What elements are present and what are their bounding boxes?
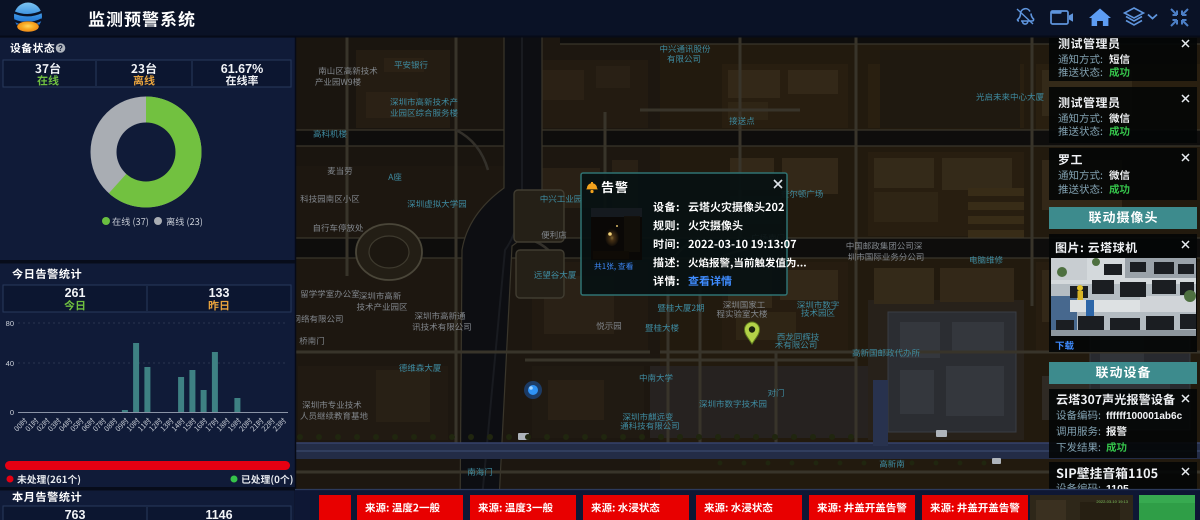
- svg-text:2022-03-10 19:13: 2022-03-10 19:13: [1096, 499, 1128, 504]
- svg-text:0: 0: [10, 408, 14, 417]
- svg-text:61.67%: 61.67%: [221, 62, 263, 76]
- svg-text:1146: 1146: [205, 508, 232, 520]
- svg-text:763: 763: [65, 508, 86, 520]
- svg-text:261: 261: [65, 286, 86, 300]
- svg-text:80: 80: [6, 319, 14, 328]
- svg-text:133: 133: [209, 286, 230, 300]
- svg-text:ffffff100001ab6c: ffffff100001ab6c: [1106, 411, 1183, 422]
- svg-text:40: 40: [6, 359, 14, 368]
- svg-text:?: ?: [58, 44, 63, 53]
